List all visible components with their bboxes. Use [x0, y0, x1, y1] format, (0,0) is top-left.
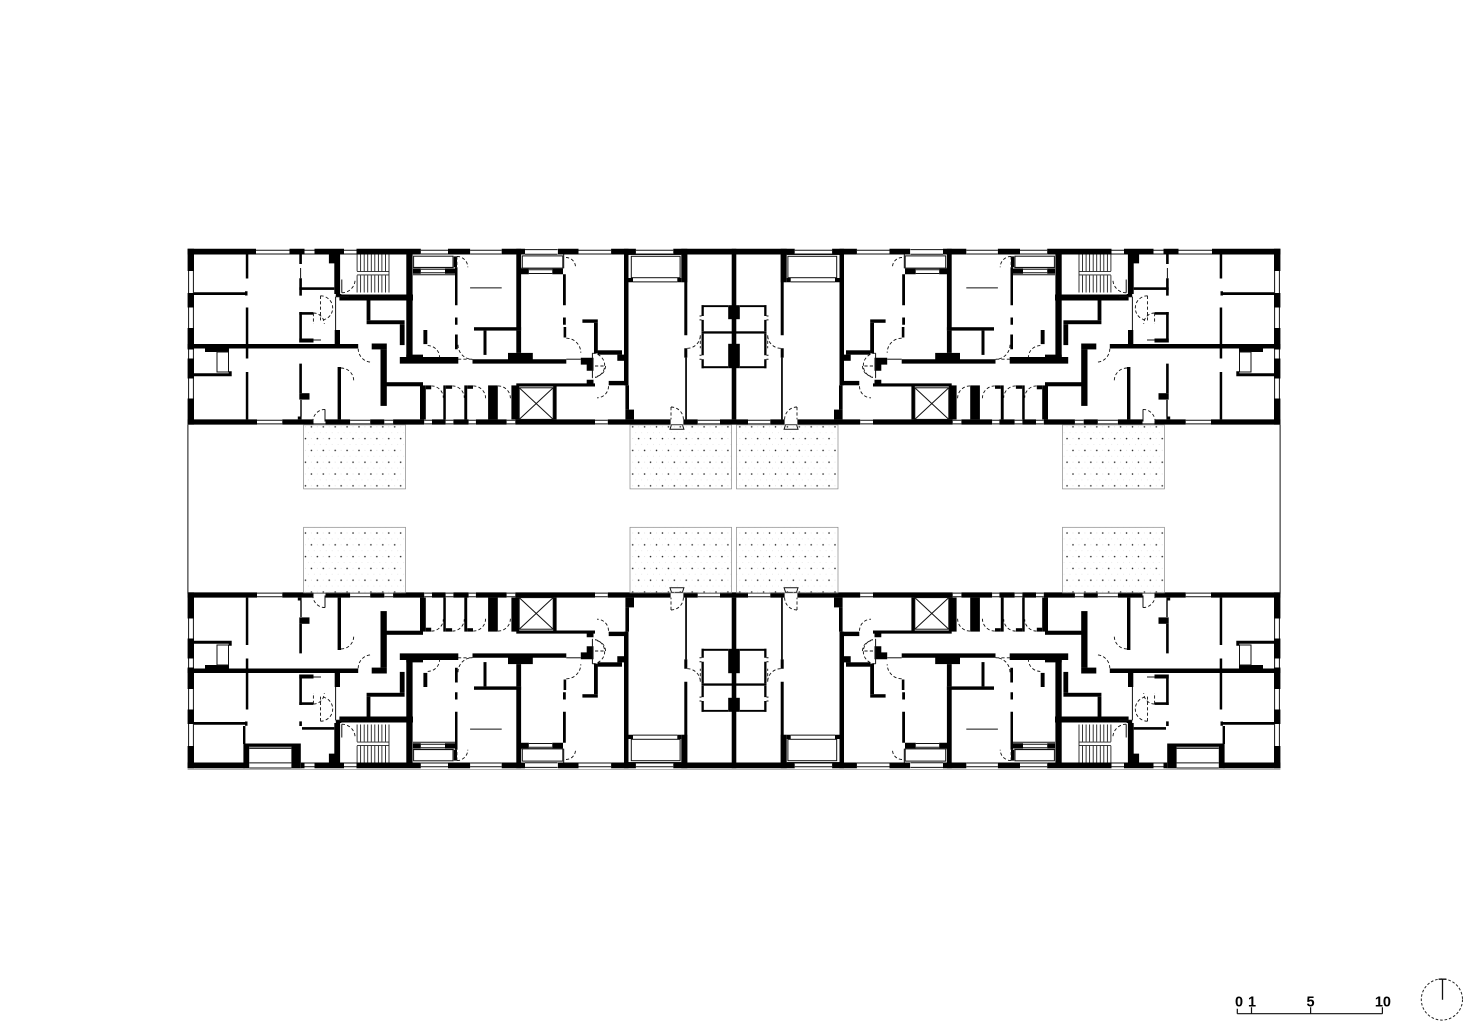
svg-text:5: 5 — [1307, 995, 1315, 1011]
svg-text:0: 0 — [1235, 995, 1243, 1011]
svg-text:10: 10 — [1375, 995, 1391, 1011]
svg-text:1: 1 — [1248, 995, 1256, 1011]
